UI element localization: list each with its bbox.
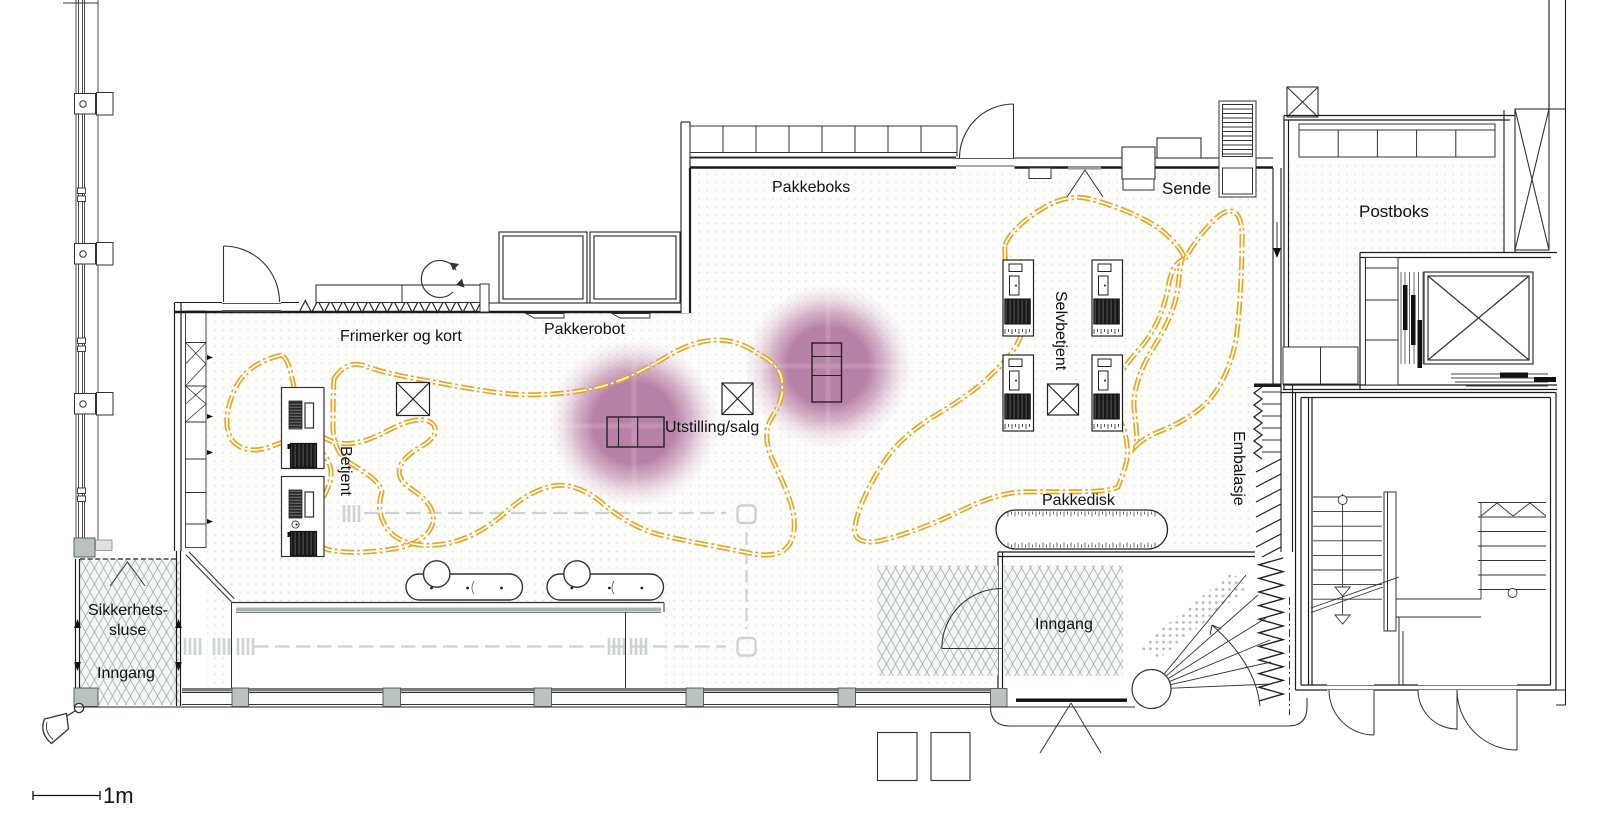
svg-text:Pakkeboks: Pakkeboks	[772, 179, 850, 196]
svg-text:Sikkerhets-: Sikkerhets-	[88, 602, 168, 619]
svg-text:sluse: sluse	[109, 622, 146, 639]
svg-text:1m: 1m	[103, 783, 134, 808]
svg-text:Utstilling/salg: Utstilling/salg	[665, 419, 759, 436]
svg-text:Inngang: Inngang	[1035, 616, 1093, 633]
svg-text:Frimerker og kort: Frimerker og kort	[340, 328, 462, 345]
svg-text:Embalasje: Embalasje	[1230, 431, 1247, 506]
svg-text:Sende: Sende	[1162, 179, 1211, 198]
svg-text:Pakkerobot: Pakkerobot	[544, 321, 625, 338]
svg-text:Pakkedisk: Pakkedisk	[1042, 492, 1116, 509]
svg-text:Betjent: Betjent	[337, 446, 354, 496]
svg-text:Postboks: Postboks	[1359, 202, 1429, 221]
svg-text:Inngang: Inngang	[97, 665, 155, 682]
svg-text:Selvbetjent: Selvbetjent	[1052, 291, 1069, 371]
